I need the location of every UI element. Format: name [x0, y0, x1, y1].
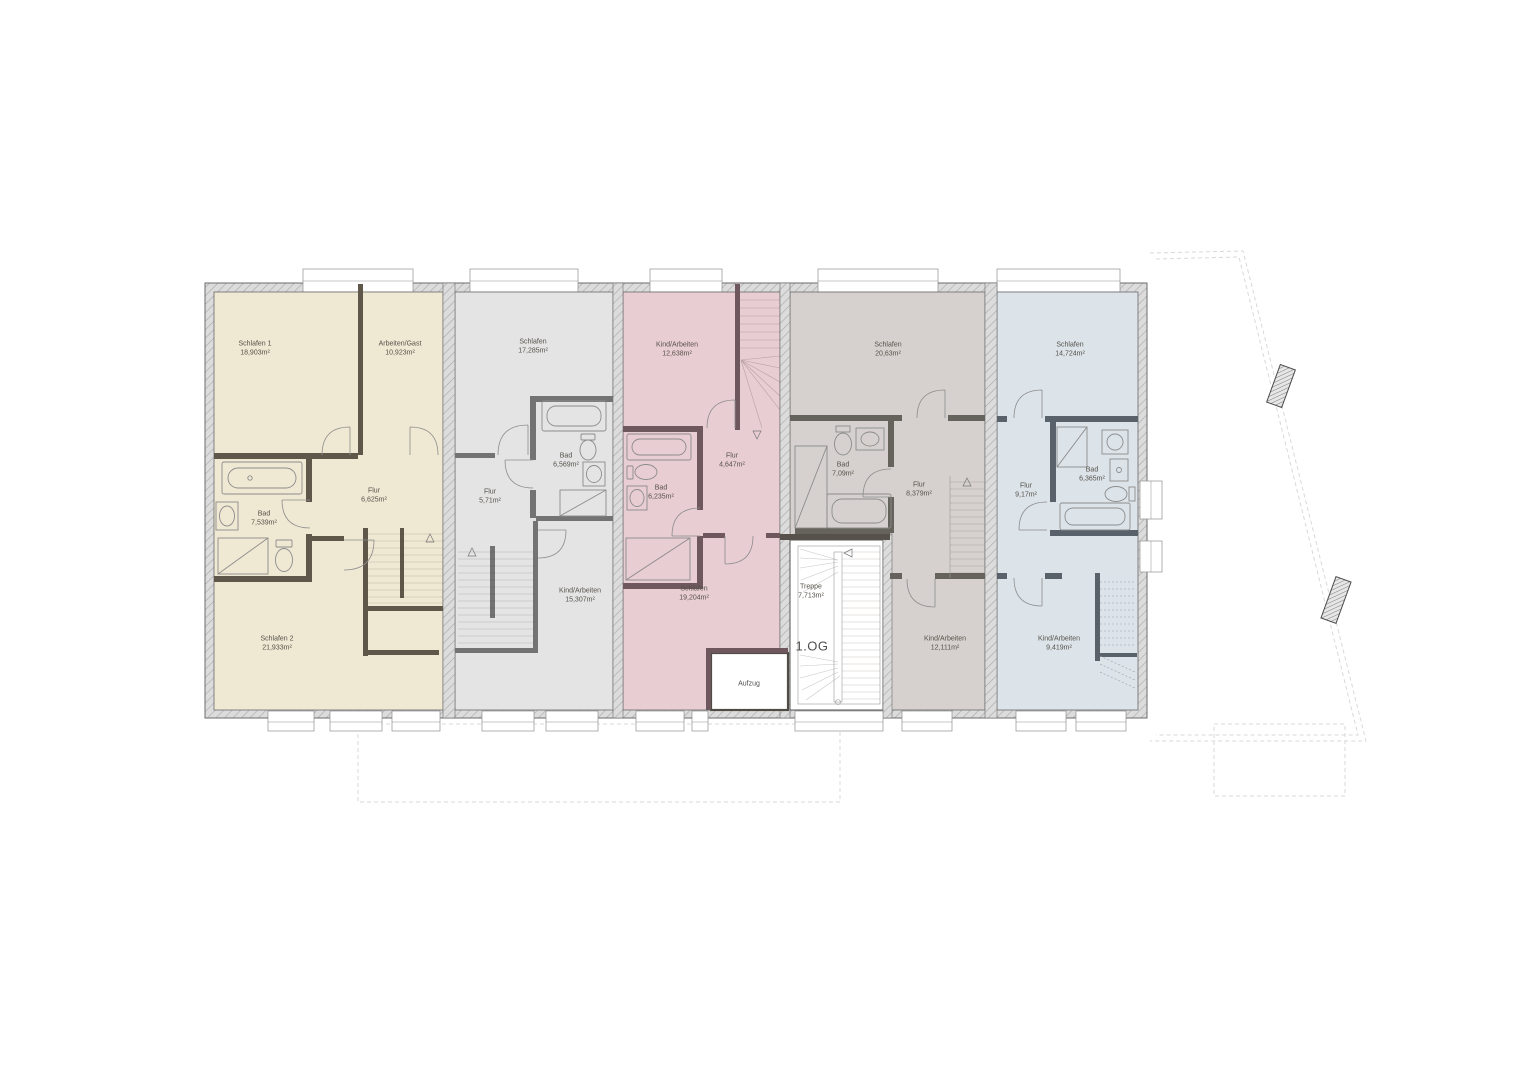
floor-plan-drawing — [0, 0, 1528, 1080]
elevator-shaft — [711, 653, 788, 710]
skylight — [1321, 577, 1351, 624]
stairwell-right-wall — [883, 534, 892, 718]
terrace-outlines — [358, 724, 1345, 802]
unit-1-floor — [214, 292, 443, 710]
floor-plan: Schlafen 118,903m² Arbeiten/Gast10,923m²… — [0, 0, 1528, 1080]
skylight — [1267, 364, 1296, 407]
unit-5-floor — [997, 292, 1138, 710]
stairwell-top-wall — [780, 534, 890, 540]
stairwell-floor — [790, 540, 883, 710]
site-outline — [1150, 251, 1366, 741]
